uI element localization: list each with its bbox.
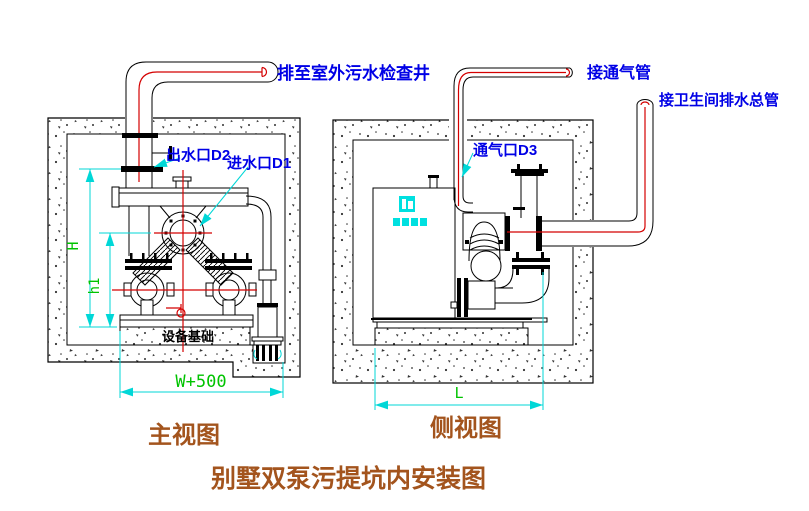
side-vent-port-label: 通气口D3 (473, 141, 537, 159)
front-pipe-note: 排至室外污水检查井 (277, 63, 430, 83)
front-outlet-label: 出水口D2 (166, 146, 230, 164)
side-view: 接通气管 接卫生间排水总管 通气口D3 L 侧视图 (333, 63, 779, 442)
drawing-title: 别墅双泵污提坑内安装图 (210, 464, 486, 493)
front-dim-width: W+500 (175, 372, 226, 392)
front-foundation-label: 设备基础 (162, 329, 214, 344)
side-view-caption: 侧视图 (430, 414, 502, 442)
front-dim-h1: h1 (87, 278, 103, 295)
side-drain-note: 接卫生间排水总管 (659, 91, 779, 109)
side-vent-note: 接通气管 (587, 63, 651, 82)
front-dim-H: H (64, 241, 82, 250)
installation-drawing: 排至室外污水检查井 出水口D2 进水口D1 设备基础 H h1 W+500 主视… (0, 0, 809, 511)
front-view-caption: 主视图 (148, 422, 220, 449)
front-inlet-label: 进水口D1 (227, 154, 291, 172)
side-dim-L: L (454, 384, 463, 402)
cad-drawing-canvas: 排至室外污水检查井 出水口D2 进水口D1 设备基础 H h1 W+500 主视… (0, 0, 809, 511)
side-foundation (373, 318, 547, 345)
